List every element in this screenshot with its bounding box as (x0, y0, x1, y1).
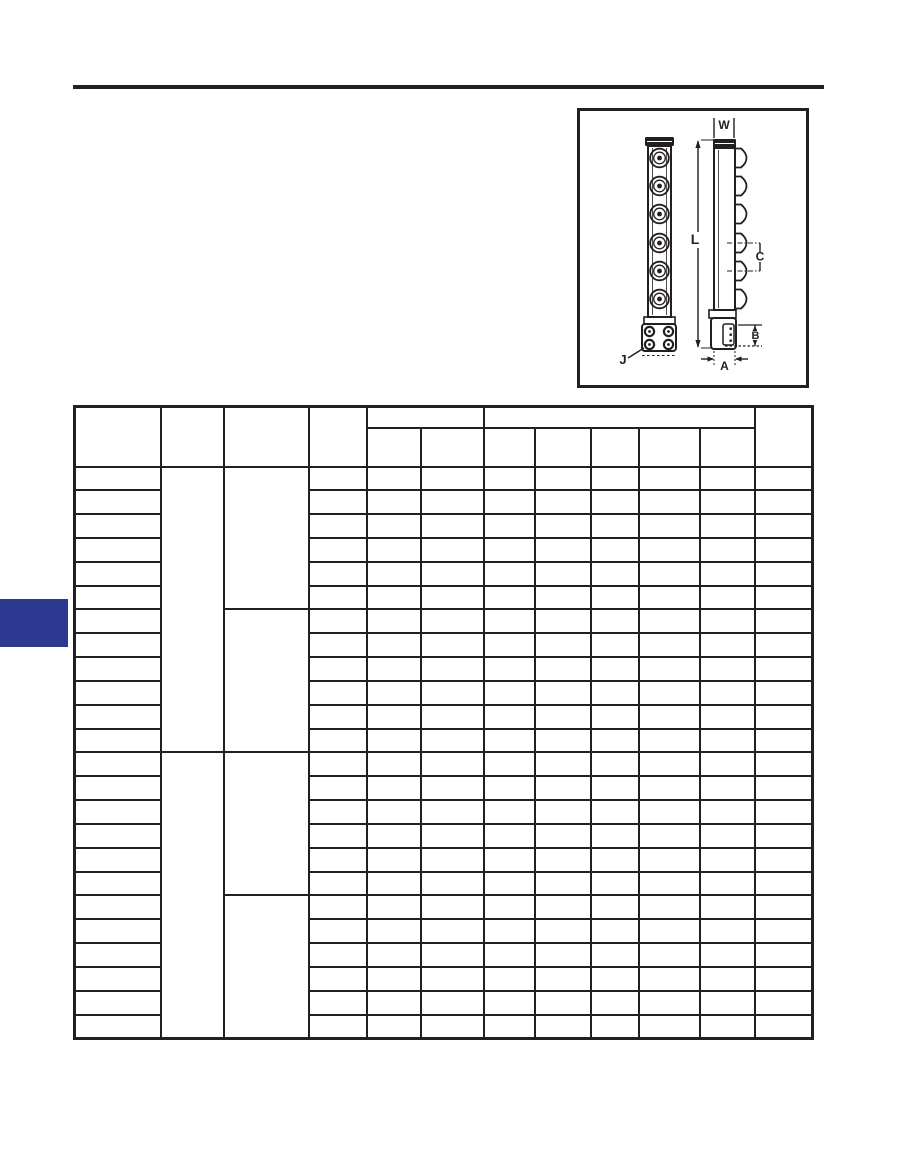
table-cell (484, 467, 535, 491)
table-cell (700, 657, 755, 681)
table-cell (535, 752, 591, 776)
table-cell (639, 919, 700, 943)
table-cell (309, 467, 367, 491)
table-cell (421, 586, 484, 610)
table-cell (367, 1015, 421, 1039)
table-cell (755, 943, 813, 967)
table-cell (367, 752, 421, 776)
table-cell (75, 514, 161, 538)
table-cell (535, 729, 591, 753)
table-cell (700, 609, 755, 633)
table-cell (309, 514, 367, 538)
dim-label-w: W (718, 118, 730, 132)
table-cell (755, 490, 813, 514)
table-cell (535, 681, 591, 705)
table-cell (591, 586, 639, 610)
front-collar (644, 317, 675, 324)
table-cell (367, 467, 421, 491)
table-cell (309, 681, 367, 705)
front-body (648, 146, 671, 317)
table-cell (639, 657, 700, 681)
table-cell (367, 562, 421, 586)
table-cell (535, 562, 591, 586)
table-cell (224, 752, 309, 895)
table-cell (75, 633, 161, 657)
table-cell (75, 490, 161, 514)
table-cell (591, 490, 639, 514)
table-cell (755, 705, 813, 729)
table-cell (639, 633, 700, 657)
header-subcell (421, 428, 484, 467)
table-cell (75, 657, 161, 681)
table-cell (421, 800, 484, 824)
table-cell (700, 752, 755, 776)
table-cell (75, 681, 161, 705)
table-cell (75, 943, 161, 967)
table-cell (535, 919, 591, 943)
table-cell (484, 514, 535, 538)
table-cell (700, 824, 755, 848)
table-cell (421, 1015, 484, 1039)
header-group-cell (367, 407, 484, 428)
table-cell (484, 681, 535, 705)
header-cell (75, 407, 161, 467)
table-cell (309, 490, 367, 514)
table-cell (484, 895, 535, 919)
table-cell (700, 1015, 755, 1039)
table-cell (591, 895, 639, 919)
table-cell (591, 609, 639, 633)
table-cell (309, 586, 367, 610)
table-cell (535, 609, 591, 633)
header-group-cell (484, 407, 755, 428)
catalog-page: J (0, 0, 905, 1175)
table-cell (755, 514, 813, 538)
table-cell (591, 562, 639, 586)
table-cell (639, 1015, 700, 1039)
table-cell (535, 967, 591, 991)
manifold-drawing: J (580, 111, 806, 385)
header-subcell (639, 428, 700, 467)
table-cell (535, 824, 591, 848)
dim-label-b: B (752, 330, 760, 342)
table-cell (700, 967, 755, 991)
manifold-side-view (695, 118, 762, 365)
table-cell (700, 943, 755, 967)
table-cell (755, 609, 813, 633)
table-cell (591, 538, 639, 562)
table-cell (484, 943, 535, 967)
table-cell (421, 895, 484, 919)
table-cell (755, 1015, 813, 1039)
table-cell (700, 467, 755, 491)
table-cell (591, 776, 639, 800)
table-cell (535, 848, 591, 872)
table-cell (535, 943, 591, 967)
table-cell (75, 729, 161, 753)
table-cell (755, 681, 813, 705)
table-cell (367, 824, 421, 848)
table-cell (75, 586, 161, 610)
table-cell (75, 609, 161, 633)
header-subcell (591, 428, 639, 467)
table-cell (75, 705, 161, 729)
table-cell (639, 991, 700, 1015)
table-cell (535, 467, 591, 491)
table-cell (309, 562, 367, 586)
table-cell (639, 848, 700, 872)
table-cell (700, 919, 755, 943)
spec-table (73, 405, 814, 1040)
table-cell (421, 991, 484, 1015)
table-cell (700, 538, 755, 562)
table-cell (484, 633, 535, 657)
header-cell (161, 407, 224, 467)
table-cell (421, 490, 484, 514)
table-cell (639, 609, 700, 633)
table-cell (700, 705, 755, 729)
table-cell (367, 633, 421, 657)
table-cell (639, 514, 700, 538)
header-cell (755, 407, 813, 467)
table-cell (591, 1015, 639, 1039)
dimension-j: J (619, 348, 644, 367)
table-cell (367, 538, 421, 562)
table-cell (535, 633, 591, 657)
table-cell (639, 562, 700, 586)
table-cell (75, 752, 161, 776)
table-cell (309, 991, 367, 1015)
table-cell (755, 729, 813, 753)
table-cell (484, 991, 535, 1015)
table-cell (367, 681, 421, 705)
table-cell (755, 824, 813, 848)
table-cell (309, 752, 367, 776)
table-cell (367, 800, 421, 824)
table-cell (639, 872, 700, 896)
table-cell (421, 609, 484, 633)
table-cell (535, 586, 591, 610)
table-cell (75, 872, 161, 896)
table-cell (639, 776, 700, 800)
table-cell (755, 895, 813, 919)
table-cell (700, 729, 755, 753)
table-cell (700, 514, 755, 538)
table-cell (309, 705, 367, 729)
table-cell (755, 657, 813, 681)
table-cell (700, 872, 755, 896)
table-cell (75, 991, 161, 1015)
table-cell (755, 919, 813, 943)
table-cell (484, 562, 535, 586)
table-cell (591, 633, 639, 657)
table-cell (484, 490, 535, 514)
table-cell (309, 848, 367, 872)
header-subcell (484, 428, 535, 467)
table-cell (484, 776, 535, 800)
table-cell (700, 776, 755, 800)
table-cell (421, 776, 484, 800)
table-cell (700, 490, 755, 514)
table-cell (755, 538, 813, 562)
table-cell (367, 586, 421, 610)
dimension-diagram: J (577, 108, 809, 388)
table-cell (700, 681, 755, 705)
table-cell (639, 800, 700, 824)
table-cell (755, 776, 813, 800)
table-cell (75, 538, 161, 562)
table-cell (535, 776, 591, 800)
table-cell (535, 872, 591, 896)
manifold-front-view (642, 137, 676, 356)
table-cell (309, 633, 367, 657)
table-cell (484, 848, 535, 872)
table-cell (639, 586, 700, 610)
table-cell (755, 633, 813, 657)
table-cell (755, 800, 813, 824)
spec-table-body (75, 467, 813, 1039)
side-body (714, 148, 735, 310)
table-cell (484, 919, 535, 943)
table-cell (367, 776, 421, 800)
table-cell (75, 824, 161, 848)
table-cell (700, 586, 755, 610)
table-cell (755, 967, 813, 991)
table-cell (75, 1015, 161, 1039)
table-cell (421, 705, 484, 729)
table-cell (224, 467, 309, 610)
table-cell (535, 1015, 591, 1039)
table-cell (75, 776, 161, 800)
dim-label-c: C (756, 250, 765, 264)
table-cell (367, 919, 421, 943)
table-cell (639, 681, 700, 705)
table-cell (755, 752, 813, 776)
mounting-bolts (645, 327, 673, 349)
table-cell (639, 729, 700, 753)
table-cell (421, 681, 484, 705)
table-cell (700, 895, 755, 919)
table-cell (639, 705, 700, 729)
table-cell (421, 467, 484, 491)
table-cell (755, 872, 813, 896)
table-cell (421, 848, 484, 872)
spec-table-header (75, 407, 813, 467)
table-cell (639, 538, 700, 562)
table-cell (535, 991, 591, 1015)
table-cell (367, 705, 421, 729)
table-cell (591, 657, 639, 681)
table-cell (309, 729, 367, 753)
table-cell (591, 991, 639, 1015)
table-cell (367, 609, 421, 633)
table-cell (700, 800, 755, 824)
table-cell (421, 919, 484, 943)
table-cell (591, 848, 639, 872)
table-cell (755, 467, 813, 491)
table-cell (484, 800, 535, 824)
table-cell (591, 729, 639, 753)
table-cell (535, 538, 591, 562)
table-cell (591, 514, 639, 538)
table-cell (421, 633, 484, 657)
table-cell (484, 705, 535, 729)
table-cell (535, 800, 591, 824)
table-cell (367, 872, 421, 896)
table-cell (421, 657, 484, 681)
table-cell (484, 1015, 535, 1039)
table-cell (161, 467, 224, 753)
table-cell (367, 657, 421, 681)
header-subcell (367, 428, 421, 467)
table-cell (591, 967, 639, 991)
table-cell (639, 895, 700, 919)
table-cell (309, 919, 367, 943)
table-cell (421, 824, 484, 848)
header-cell (224, 407, 309, 467)
dim-label-a: A (720, 359, 729, 373)
table-cell (309, 967, 367, 991)
table-cell (367, 729, 421, 753)
side-collar (709, 310, 736, 318)
table-cell (484, 752, 535, 776)
table-cell (367, 991, 421, 1015)
table-cell (484, 872, 535, 896)
table-cell (591, 943, 639, 967)
table-cell (591, 800, 639, 824)
table-cell (639, 490, 700, 514)
table-cell (591, 752, 639, 776)
table-cell (75, 967, 161, 991)
table-cell (161, 752, 224, 1038)
table-cell (309, 776, 367, 800)
table-cell (535, 895, 591, 919)
table-row (75, 752, 813, 776)
table-cell (700, 991, 755, 1015)
table-cell (309, 895, 367, 919)
header-subcell (535, 428, 591, 467)
table-cell (484, 586, 535, 610)
table-cell (639, 967, 700, 991)
table-cell (639, 824, 700, 848)
front-port-circles (650, 149, 669, 309)
header-subcell (700, 428, 755, 467)
table-cell (755, 586, 813, 610)
table-cell (639, 467, 700, 491)
table-cell (484, 609, 535, 633)
header-rule (73, 85, 824, 89)
table-cell (700, 848, 755, 872)
table-cell (75, 895, 161, 919)
table-cell (484, 967, 535, 991)
table-cell (75, 562, 161, 586)
table-cell (591, 824, 639, 848)
table-cell (75, 848, 161, 872)
table-row (75, 467, 813, 491)
table-cell (309, 872, 367, 896)
table-cell (224, 609, 309, 752)
table-cell (309, 800, 367, 824)
table-cell (421, 752, 484, 776)
table-cell (367, 848, 421, 872)
table-cell (755, 991, 813, 1015)
dim-label-l: L (691, 231, 700, 247)
table-cell (535, 705, 591, 729)
header-row-groups (75, 407, 813, 428)
table-cell (309, 609, 367, 633)
table-cell (421, 729, 484, 753)
table-cell (591, 467, 639, 491)
table-cell (367, 943, 421, 967)
table-cell (535, 490, 591, 514)
table-cell (309, 657, 367, 681)
table-cell (591, 681, 639, 705)
table-cell (367, 967, 421, 991)
table-cell (591, 919, 639, 943)
table-cell (639, 943, 700, 967)
page-edge-tab (0, 599, 68, 647)
table-cell (75, 467, 161, 491)
table-cell (700, 562, 755, 586)
table-cell (591, 872, 639, 896)
header-cell (309, 407, 367, 467)
table-cell (421, 538, 484, 562)
table-cell (535, 514, 591, 538)
table-cell (309, 943, 367, 967)
table-cell (484, 538, 535, 562)
table-cell (484, 824, 535, 848)
table-cell (224, 895, 309, 1038)
side-base-detail (723, 324, 734, 345)
dim-label-j: J (619, 352, 626, 367)
table-cell (639, 752, 700, 776)
table-cell (755, 848, 813, 872)
table-cell (591, 705, 639, 729)
table-cell (421, 514, 484, 538)
table-cell (367, 895, 421, 919)
table-cell (421, 562, 484, 586)
table-cell (421, 872, 484, 896)
table-cell (309, 1015, 367, 1039)
table-cell (484, 657, 535, 681)
table-cell (421, 943, 484, 967)
table-cell (367, 490, 421, 514)
side-hex-fittings (735, 149, 747, 309)
table-cell (755, 562, 813, 586)
table-cell (309, 824, 367, 848)
table-cell (309, 538, 367, 562)
table-cell (367, 514, 421, 538)
table-cell (75, 800, 161, 824)
table-cell (421, 967, 484, 991)
table-cell (700, 633, 755, 657)
table-cell (484, 729, 535, 753)
table-cell (535, 657, 591, 681)
table-cell (75, 919, 161, 943)
